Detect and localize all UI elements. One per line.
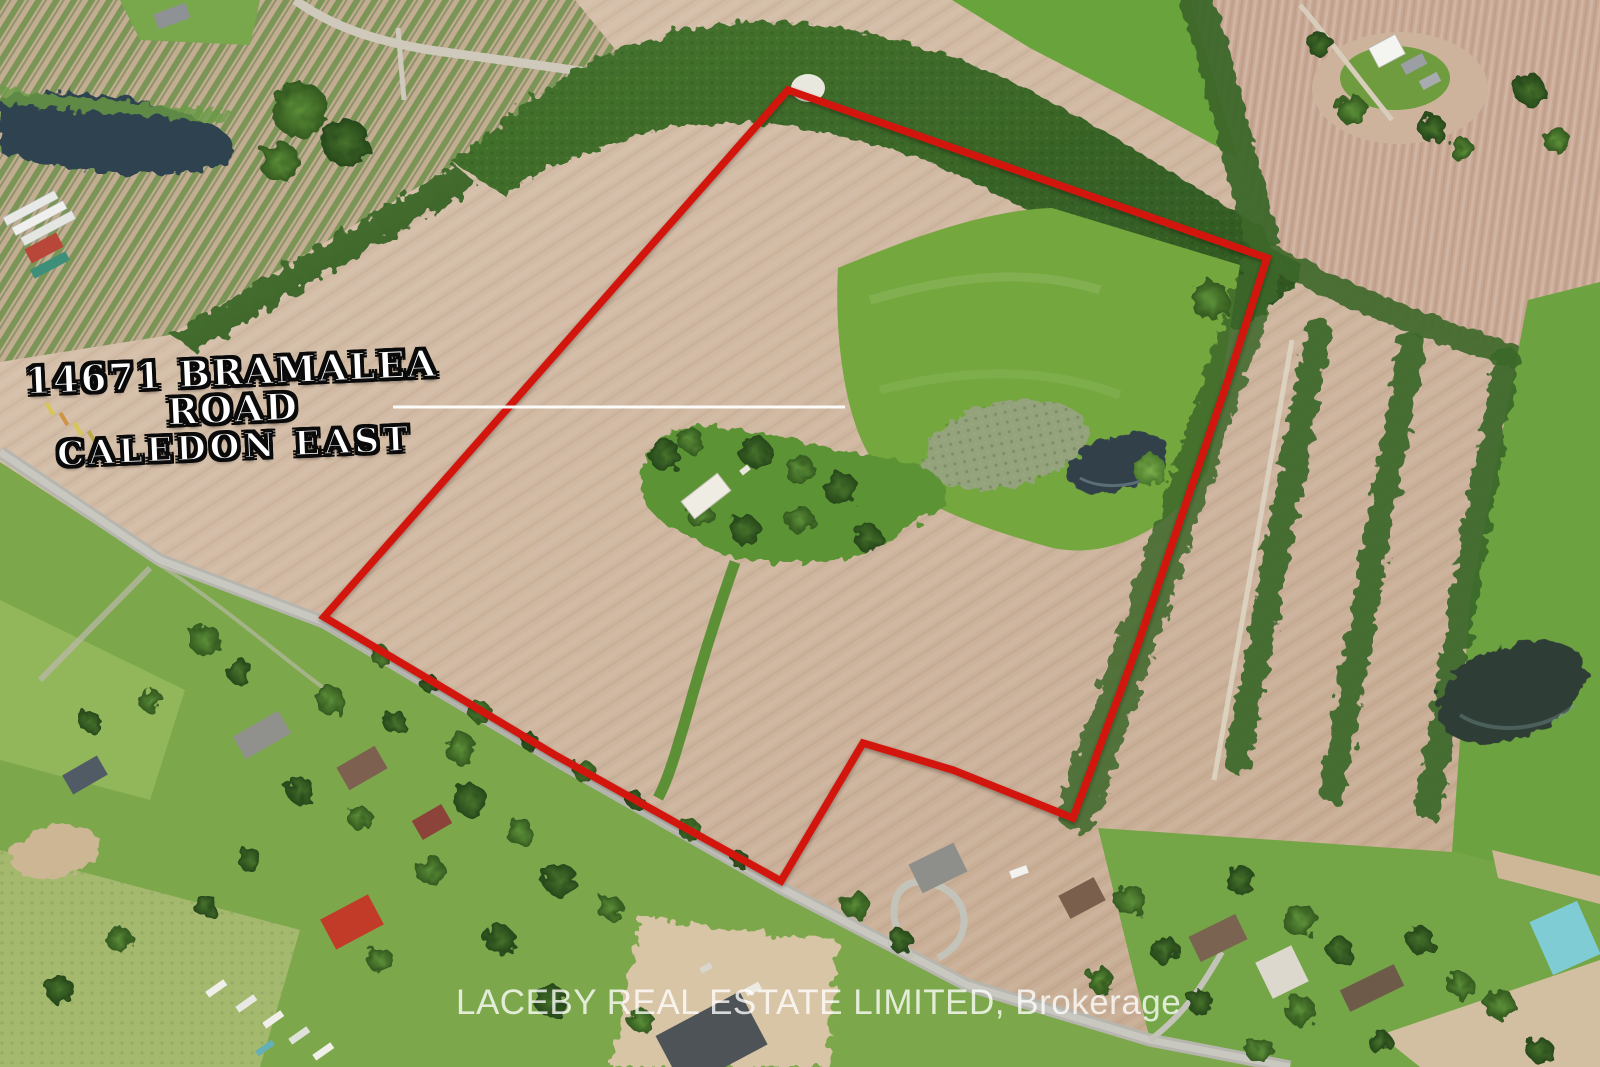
address-annotation: 14671 BRAMALEA ROAD CALEDON EAST bbox=[6, 344, 460, 474]
aerial-scene bbox=[0, 0, 1600, 1067]
brokerage-watermark: LACEBY REAL ESTATE LIMITED, Brokerage bbox=[456, 983, 1181, 1023]
listing-aerial-photo: 14671 BRAMALEA ROAD CALEDON EAST LACEBY … bbox=[0, 0, 1600, 1067]
